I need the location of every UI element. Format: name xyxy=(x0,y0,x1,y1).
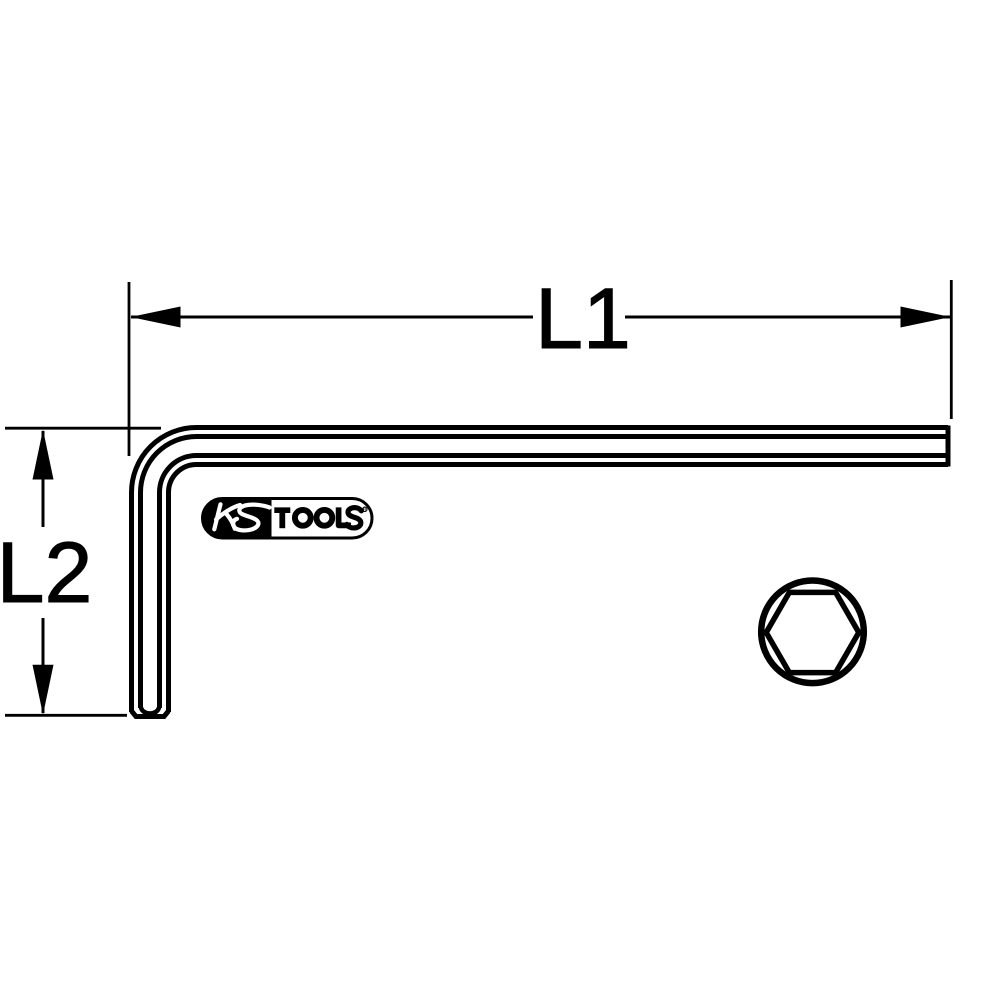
svg-text:L2: L2 xyxy=(0,525,92,621)
svg-text:L1: L1 xyxy=(535,271,631,367)
